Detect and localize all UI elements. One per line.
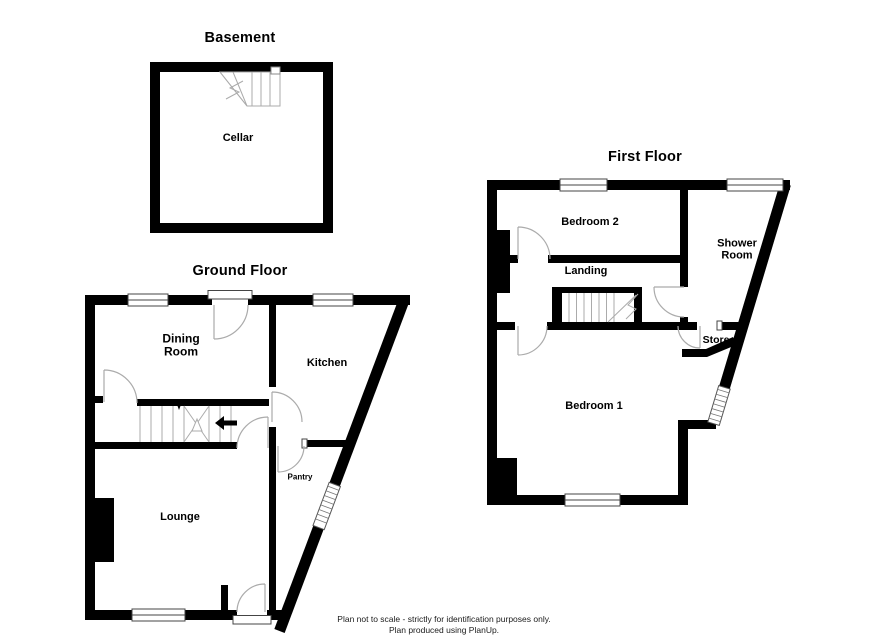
ground-floor-walls [85,295,410,631]
door-icon [208,291,252,340]
door-icon [272,392,302,422]
room-label-store: Store [703,334,730,346]
plan-disclaimer-line1: Plan not to scale - strictly for identif… [337,614,550,625]
floor-title-first-floor: First Floor [608,149,682,165]
first-floor-walls [487,180,790,505]
door-icon [654,287,684,317]
room-label-pantry: Pantry [288,473,313,482]
plan-disclaimer: Plan not to scale - strictly for identif… [337,614,550,636]
window-icon [560,179,607,191]
room-label-bedroom-2: Bedroom 2 [561,216,618,228]
floor-title-ground-floor: Ground Floor [192,263,287,279]
door-icon [237,417,268,448]
stair-direction-arrow [215,416,237,430]
plan-disclaimer-line2: Plan produced using PlanUp. [337,625,550,636]
basement-plan [150,62,333,233]
first-floor-windows [560,179,783,506]
window-icon [708,386,730,426]
chimney-breast [487,230,510,293]
chimney-breast [95,498,114,562]
basement-staircase-icon [220,67,280,106]
window-icon [313,482,340,529]
window-icon [565,494,620,506]
ground-floor-staircase-icon [140,406,237,442]
door-icon [518,326,547,355]
window-icon [128,294,168,306]
window-icon [313,294,353,306]
window-icon [132,609,185,621]
first-floor-plan [487,179,790,506]
window-icon [727,179,783,191]
first-floor-staircase-icon [569,293,638,322]
room-label-cellar: Cellar [223,132,254,144]
room-label-bedroom-1: Bedroom 1 [565,400,622,412]
floor-title-basement: Basement [205,30,276,46]
room-label-dining-room: Dining Room [152,333,210,360]
room-label-lounge: Lounge [160,511,200,523]
floorplan-page: Basement Cellar Ground Floor Dining Room… [0,0,886,644]
ground-floor-plan [85,291,410,632]
room-label-kitchen: Kitchen [307,357,347,369]
door-icon [518,227,550,259]
door-icon [104,370,137,403]
door-icon [278,439,307,472]
room-label-shower-room: Shower Room [710,238,764,263]
door-icon [233,584,271,624]
floorplan-drawing [0,0,886,644]
room-label-landing: Landing [565,265,608,277]
